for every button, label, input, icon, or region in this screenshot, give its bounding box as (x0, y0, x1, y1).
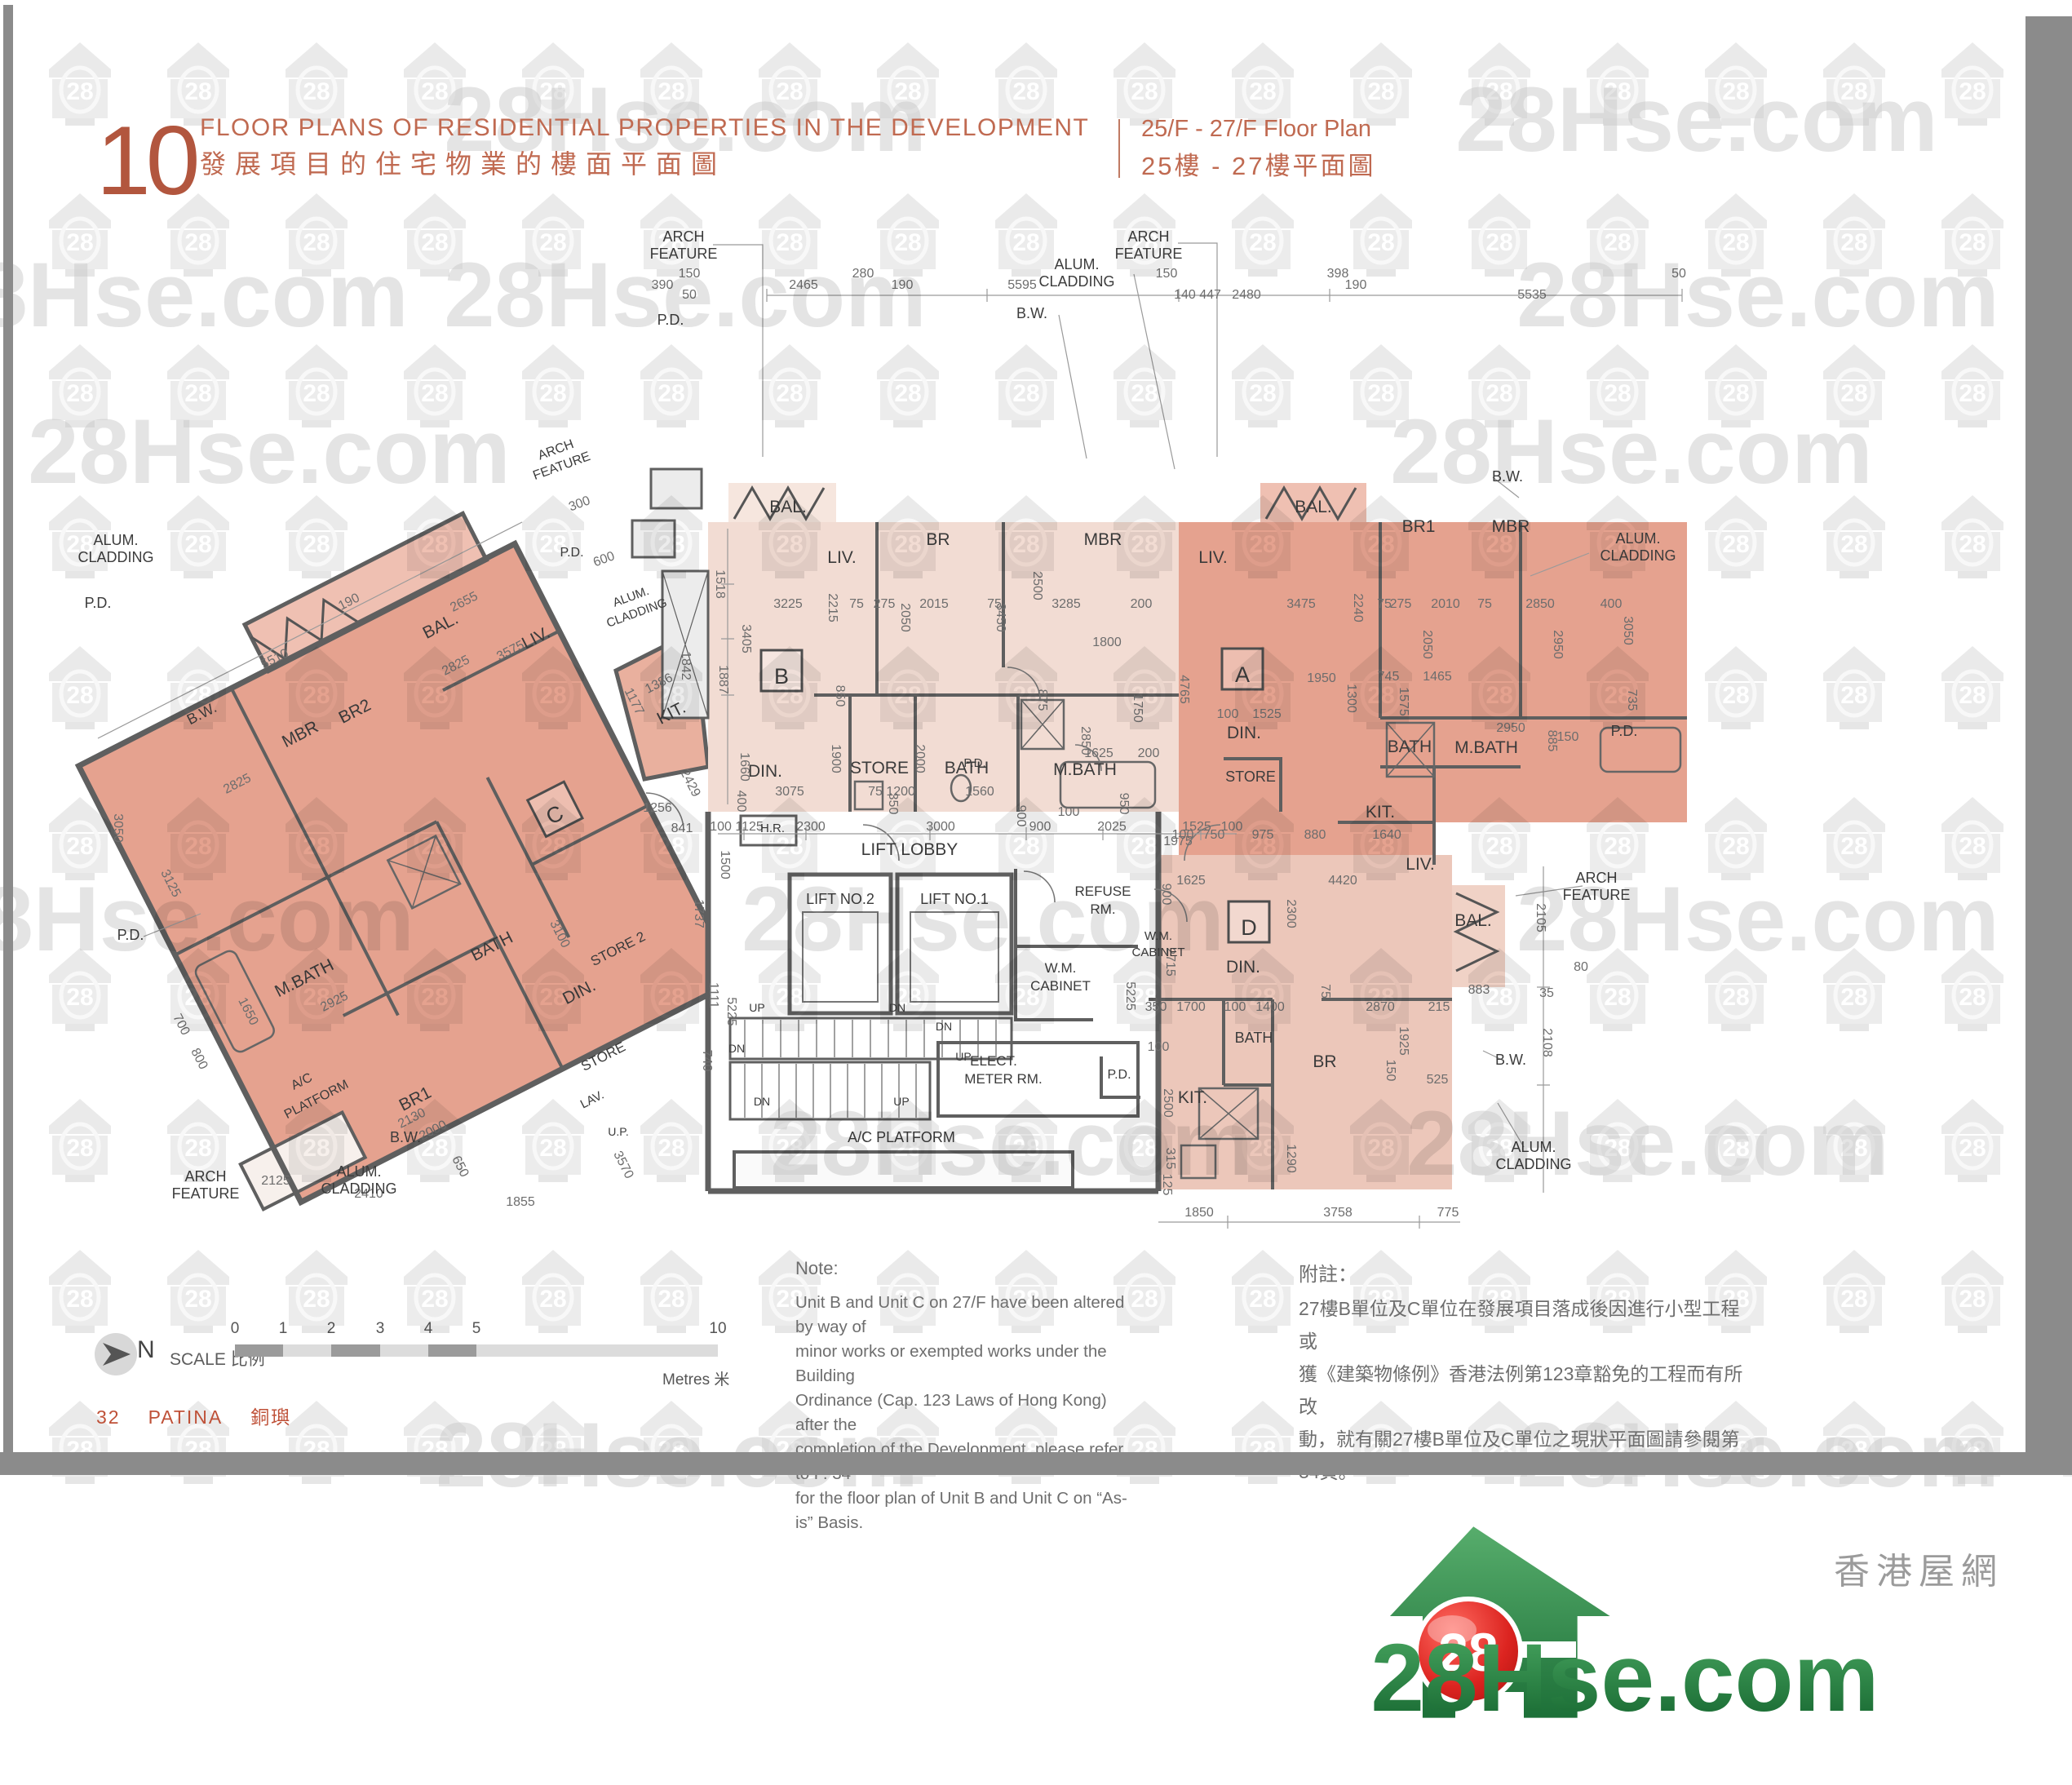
plan-label: 745 (1378, 670, 1400, 684)
plan-label: M.BATH (1454, 738, 1518, 757)
plan-label: BR (926, 530, 950, 549)
plan-label: 2465 (789, 278, 818, 292)
plan-label: P.D. (657, 312, 684, 328)
plan-label: 1842 (679, 651, 693, 680)
floor-range-en: 25/F - 27/F Floor Plan (1141, 116, 1371, 143)
plan-label: MBR (1492, 517, 1530, 536)
logo-brand: 28Hse.com (1370, 1624, 1879, 1732)
plan-label: 3050 (111, 813, 125, 843)
plan-label: 4765 (1177, 675, 1191, 704)
plan-label: 875 (1035, 689, 1049, 711)
plan-label: 350 (1145, 1000, 1167, 1014)
plan-label: 883 (1468, 983, 1490, 997)
footer-name: PATINA (148, 1406, 224, 1428)
footer-cjk: 銅璵 (250, 1406, 291, 1428)
plan-label: 1400 (1255, 1000, 1285, 1014)
plan-label: 150 (1156, 267, 1178, 281)
plan-label: W.M. (1045, 960, 1077, 976)
plan-label: DN (936, 1020, 952, 1033)
footer-page-num: 32 (96, 1406, 121, 1428)
plan-label: 1950 (1307, 671, 1336, 685)
plan-label: 400 (734, 791, 748, 813)
plan-label: CABINET (1131, 946, 1184, 959)
plan-label: P.D. (1611, 723, 1638, 739)
plan-label: 3758 (1323, 1206, 1353, 1220)
plan-label: BAL. (1454, 911, 1492, 930)
plan-label: 2050 (1420, 630, 1434, 659)
plan-label: 200 (1138, 746, 1160, 760)
plan-label: 125 (1160, 1174, 1174, 1196)
plan-label: 1850 (1184, 1206, 1214, 1220)
plan-label: ARCHFEATURE (1563, 870, 1631, 903)
plan-label: 2050 (898, 603, 912, 632)
plan-label: 2300 (796, 820, 826, 834)
plan-label: DIN. (1227, 724, 1261, 742)
plan-label: 1525 (1252, 707, 1282, 721)
plan-label: ARCHFEATURE (1115, 228, 1183, 262)
plan-label: UP (749, 1001, 764, 1014)
plan-label: B.W. (1016, 305, 1047, 321)
plan-label: 750 (1203, 828, 1225, 842)
plan-label: 900 (1014, 805, 1028, 827)
plan-label: 2215 (826, 593, 839, 622)
plan-label: 1737 (692, 899, 706, 928)
plan-label: 3075 (775, 785, 804, 799)
plan-label: 2950 (1496, 721, 1525, 735)
plan-label: ARCHFEATURE (172, 1168, 240, 1202)
plan-label: P.D. (85, 595, 112, 611)
plan-label: 300 (567, 494, 592, 514)
plan-label: 2240 (1351, 593, 1365, 622)
plan-label: 2015 (919, 597, 949, 611)
plan-label: 75 (849, 597, 864, 611)
plan-label: ALUM.CLADDING (1038, 256, 1114, 290)
plan-label: 75 (1318, 984, 1332, 999)
page-title-en: FLOOR PLANS OF RESIDENTIAL PROPERTIES IN… (200, 114, 1089, 142)
plan-label: METER RM. (964, 1071, 1042, 1087)
banner-address: 聯合道18號 (21, 1596, 301, 1675)
plan-label: 3285 (1051, 597, 1081, 611)
plan-label: 5225 (724, 997, 738, 1026)
plan-label: LAV. (578, 1088, 606, 1112)
plan-label: ELECT. (970, 1053, 1017, 1069)
plan-label: BR1 (1402, 517, 1436, 536)
plan-label: H.R. (760, 822, 785, 835)
plan-label: 2850 (1525, 597, 1555, 611)
plan-label: 525 (1427, 1073, 1449, 1087)
plan-label: 2125 (261, 1174, 290, 1188)
plan-label: 1290 (1284, 1144, 1298, 1173)
plan-label: B.W. (1492, 468, 1523, 485)
header-divider (1118, 119, 1120, 178)
plan-label: 5225 (1123, 981, 1137, 1011)
plan-label: REFUSE (1075, 884, 1131, 899)
plan-label: 2480 (1232, 288, 1261, 302)
plan-label: 50 (682, 288, 697, 302)
plan-label: 315 (1163, 1148, 1177, 1170)
plan-label: 5535 (1517, 288, 1547, 302)
plan-label: A/C PLATFORM (848, 1129, 955, 1145)
plan-label: 80 (1574, 960, 1588, 974)
plan-label: 1887 (716, 665, 730, 694)
plan-label: DIN. (1226, 958, 1260, 977)
plan-label: 75 (1477, 597, 1492, 611)
floor-range-zh: 25樓 - 27樓平面圖 (1141, 145, 1376, 182)
plan-label: 280 (852, 267, 874, 281)
plan-label: 1575 (1397, 687, 1410, 716)
note-title-zh: 附註： (1299, 1258, 1357, 1287)
plan-label: 1111 (706, 982, 720, 1008)
page-footer: 32PATINA銅璵 (96, 1402, 319, 1429)
plan-label: LIV. (827, 548, 856, 567)
plan-label: LIFT NO.1 (920, 891, 989, 907)
plan-label: 2000 (913, 744, 927, 773)
plan-label: 2010 (1431, 597, 1460, 611)
plan-label: P.D. (963, 756, 985, 770)
plan-label: BR (1313, 1052, 1336, 1071)
plan-label: 2105 (1534, 903, 1547, 932)
plan-label: 2108 (1540, 1028, 1554, 1057)
plan-label: 950 (1117, 793, 1131, 815)
page-number: 10 (96, 104, 195, 217)
plan-label: 2500 (1161, 1088, 1175, 1118)
plan-label: 3050 (1621, 616, 1635, 645)
page-border-right (2026, 16, 2072, 1452)
plan-label: 650 (449, 1154, 471, 1180)
banner-title: 銅璵 PATINA (21, 1503, 393, 1594)
plan-label: 1500 (718, 850, 732, 879)
plan-label: 150 (679, 267, 701, 281)
plan-label: BAL. (1295, 498, 1332, 516)
plan-label: DN (754, 1095, 770, 1108)
plan-label: ALUM.CLADDING (599, 580, 669, 631)
plan-label: LIV. (1198, 548, 1227, 567)
plan-label: 975 (1252, 828, 1274, 842)
plan-label: 1900 (829, 744, 843, 773)
plan-label: DN (889, 1001, 905, 1014)
plan-label: KIT. (1178, 1088, 1207, 1107)
plan-label: 735 (1625, 689, 1639, 711)
plan-label: 841 (671, 822, 693, 835)
plan-label: 1465 (1423, 670, 1452, 684)
plan-label: 2429 (677, 767, 702, 799)
plan-label: ARCHFEATURE (525, 433, 592, 483)
plan-label: 200 (1131, 597, 1153, 611)
plan-label: LIV. (1406, 855, 1434, 874)
plan-label: 190 (892, 278, 914, 292)
plan-label: ALUM.CLADDING (1495, 1139, 1571, 1172)
plan-label: 850 (833, 685, 847, 707)
plan-label: 1560 (965, 785, 994, 799)
banner-floors: 銅璵 25 至 27樓 (21, 1689, 407, 1768)
plan-label: 5595 (1007, 278, 1037, 292)
plan-label: 900 (1159, 884, 1173, 906)
plan-label: 3570 (610, 1149, 635, 1181)
logo-tagline: 香港屋網 (1834, 1542, 2003, 1594)
plan-label: 2300 (1284, 899, 1298, 928)
plan-label: 775 (1437, 1206, 1459, 1220)
plan-label: 140 447 (1174, 288, 1221, 302)
plan-label: P.D. (560, 546, 583, 560)
plan-label: CABINET (1030, 978, 1091, 994)
page: { "header": { "page_num": "10", "title_e… (0, 0, 2072, 1785)
plan-label: BATH (1235, 1030, 1273, 1046)
plan-label: 215 (1428, 1000, 1450, 1014)
plan-label: UP (955, 1050, 971, 1063)
plan-label: 1518 (713, 569, 727, 599)
plan-label: 880 (1304, 828, 1326, 842)
plan-label: LIFT NO.2 (806, 891, 874, 907)
plan-label: 800 (188, 1046, 210, 1072)
plan-label: 400 (1600, 597, 1623, 611)
page-border-bottom (0, 1452, 2072, 1475)
plan-label: 2870 (1366, 1000, 1395, 1014)
plan-label: 1855 (506, 1195, 535, 1209)
plan-label: 3000 (926, 820, 955, 834)
page-border-left (3, 5, 13, 1452)
plan-label: 3225 (773, 597, 803, 611)
plan-label: 275 (874, 597, 896, 611)
plan-label: 390 (652, 278, 674, 292)
plan-label: DN (728, 1042, 745, 1055)
plan-label: 100 (1058, 805, 1080, 819)
plan-label: 1625 (1176, 874, 1206, 888)
plan-label: B (774, 664, 789, 689)
plan-label: 35 (1539, 986, 1554, 1000)
plan-label: 1300 (1344, 684, 1358, 713)
plan-label: 900 (1029, 820, 1051, 834)
plan-label: 1256 (643, 801, 672, 815)
plan-label: 2950 (1551, 630, 1565, 659)
plan-label: P.D. (1107, 1068, 1131, 1082)
plan-label: 4420 (1328, 874, 1357, 888)
plan-label: BATH (1388, 737, 1432, 756)
plan-label: 3450 (994, 603, 1007, 632)
plan-label: KIT. (1366, 803, 1395, 822)
plan-label: BAL. (769, 498, 807, 516)
plan-label: M.BATH (1053, 760, 1117, 779)
plan-label: B.W. (390, 1129, 421, 1145)
plan-label: 100 (1224, 1000, 1246, 1014)
plan-label: P.D. (117, 927, 144, 943)
plan-label: 50 (1671, 267, 1686, 281)
plan-label: 190 (1345, 278, 1367, 292)
plan-label: 100 1125 (710, 820, 764, 834)
plan-label: 3475 (1286, 597, 1316, 611)
note-title-en: Note: (795, 1258, 839, 1279)
plan-label: 2025 (1097, 820, 1127, 834)
plan-label: 1975 (1163, 835, 1193, 848)
page-title-zh: 發展項目的住宅物業的樓面平面圖 (200, 144, 726, 181)
plan-label: B.W. (1495, 1052, 1526, 1068)
plan-label: 1700 (1176, 1000, 1206, 1014)
plan-label: U.P. (608, 1125, 628, 1138)
property-banner: 銅璵 PATINA 聯合道18號 銅璵 25 至 27樓 (0, 1475, 1260, 1785)
plan-label: RM. (1090, 901, 1115, 917)
north-arrow (88, 1323, 268, 1389)
plan-label: STORE (1225, 768, 1276, 785)
plan-label: 150 (1557, 730, 1579, 744)
plan-label: ALUM.CLADDING (77, 532, 153, 565)
plan-label: 100 (1148, 1040, 1170, 1054)
plan-label: D (1241, 915, 1257, 940)
plan-label: 100 (1217, 707, 1239, 721)
plan-label: STORE (850, 759, 909, 777)
plan-label: ARCHFEATURE (650, 228, 718, 262)
plan-label: 2850 (1078, 726, 1092, 755)
plan-label: MBR (1084, 530, 1122, 549)
plan-label: UP (893, 1095, 909, 1108)
plan-label: 1640 (1372, 828, 1401, 842)
plan-label: 150 (1384, 1060, 1397, 1082)
plan-label: DIN. (748, 762, 782, 781)
plan-label: W.M. (1144, 929, 1172, 943)
plan-label: 2500 (1030, 571, 1044, 600)
plan-label: 350 (886, 793, 900, 815)
plan-label: A (1235, 662, 1250, 687)
plan-label: 1800 (1092, 636, 1122, 649)
plan-label: 600 (591, 549, 617, 569)
plan-label: 740 (700, 1050, 714, 1072)
plan-label: LIFT LOBBY (861, 840, 959, 859)
plan-label: 700 (170, 1012, 192, 1038)
plan-label: 1925 (1397, 1026, 1410, 1056)
plan-label: 3405 (739, 624, 753, 653)
plan-label: 1750 (1131, 693, 1144, 723)
plan-label: 275 (1390, 597, 1412, 611)
